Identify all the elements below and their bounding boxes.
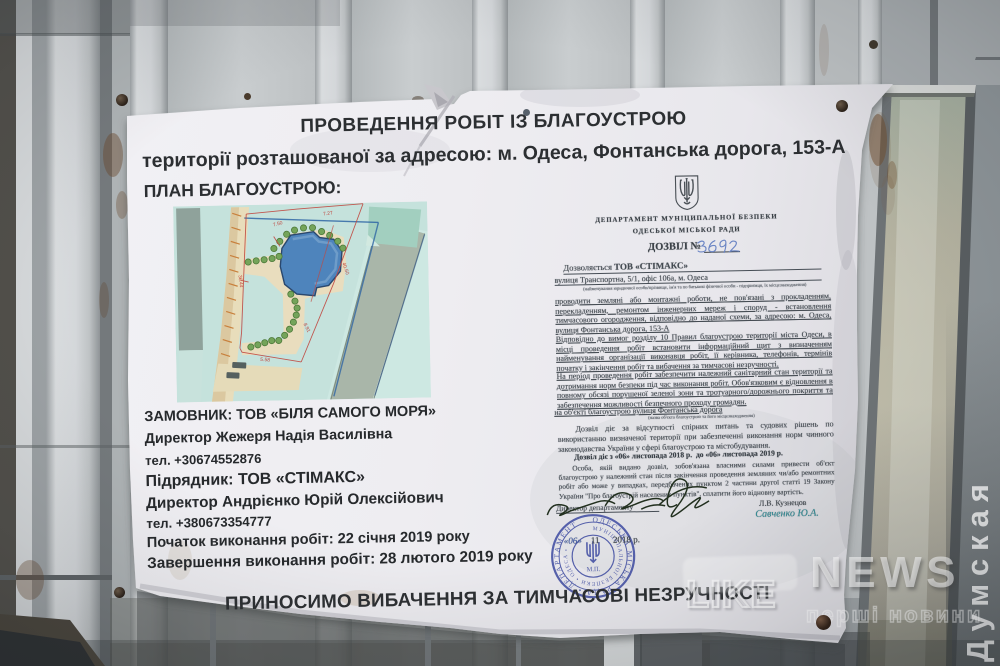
svg-text:М.П.: М.П. [586,566,600,573]
svg-text:7.27: 7.27 [323,210,334,217]
svg-text:5.58: 5.58 [260,357,270,364]
